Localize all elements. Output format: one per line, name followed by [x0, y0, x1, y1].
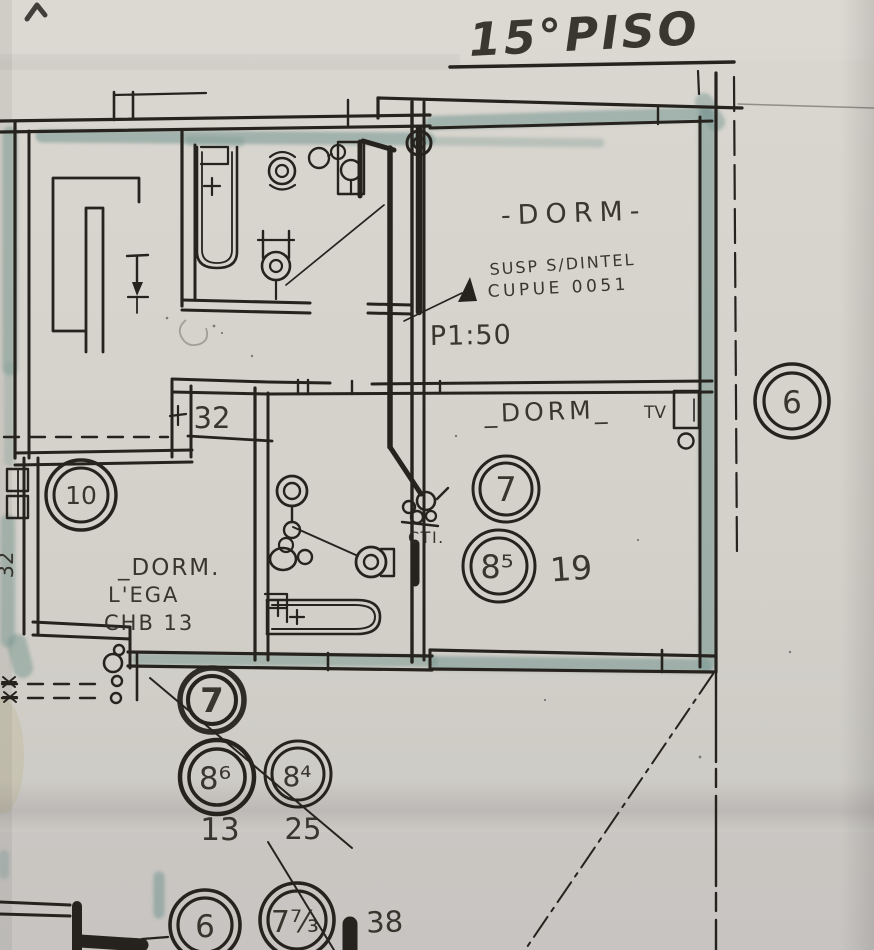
marker-lower86-value: 8⁶: [199, 761, 231, 797]
tv-label: TV: [643, 403, 666, 423]
cti-label: CTI.: [408, 528, 445, 547]
scale-note: P1:50: [430, 320, 512, 352]
dorm-left-line2: L'EGA: [108, 583, 179, 607]
marker-room8s-value: 8⁵: [480, 548, 513, 586]
marker-lower84-value: 8⁴: [282, 760, 311, 793]
floor-plan-photo: 15°PISO -DORM- SUSP S/DINTEL CUPUE 0051 …: [0, 0, 874, 950]
dorm-left-label: _DORM.: [117, 555, 220, 581]
value-13: 13: [200, 812, 239, 848]
dorm-right-label: _DORM_: [483, 395, 612, 428]
dim-32-top: 32: [194, 401, 231, 435]
marker-room7-value: 7: [495, 470, 517, 510]
dorm-top-label: -DORM-: [500, 195, 647, 231]
marker-lower7-value: 7: [200, 681, 224, 721]
value-25: 25: [285, 812, 322, 846]
floor-plan-drawing: 15°PISO -DORM- SUSP S/DINTEL CUPUE 0051 …: [0, 0, 874, 950]
marker-lower7: 7: [180, 668, 244, 732]
marker-room6-value: 6: [782, 385, 802, 421]
value-38: 38: [366, 904, 404, 939]
marker-bottom6-value: 6: [195, 909, 215, 945]
dorm-left-line3: CHB 13: [104, 611, 194, 635]
value-19: 19: [549, 548, 594, 590]
marker-bottom73-value: 7⁷⁄₃: [271, 905, 319, 940]
marker-room10-value: 10: [65, 481, 97, 510]
dim-32-left: 32: [0, 552, 18, 579]
